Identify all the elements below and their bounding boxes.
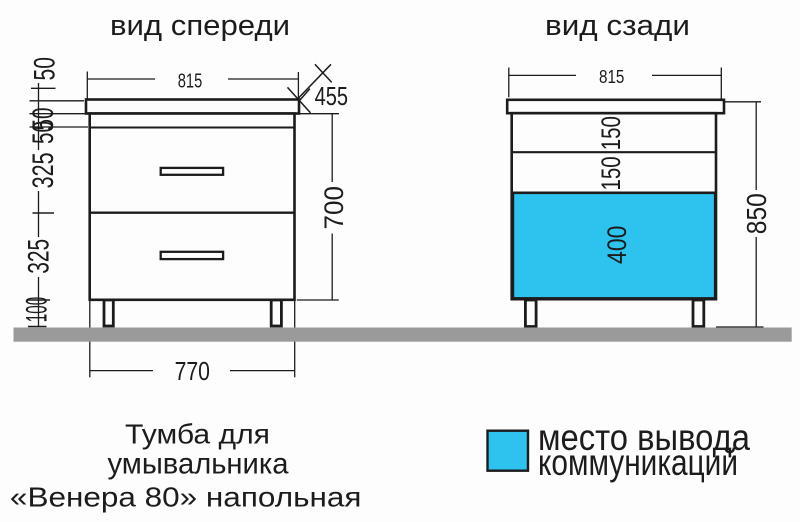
svg-text:700: 700 [319,186,349,230]
svg-text:815: 815 [178,71,203,93]
svg-text:400: 400 [602,226,632,264]
svg-text:Тумба для: Тумба для [125,419,270,450]
svg-text:455: 455 [315,81,348,111]
svg-text:вид спереди: вид спереди [110,10,290,42]
svg-text:770: 770 [175,356,210,386]
svg-text:815: 815 [599,67,624,87]
svg-text:50: 50 [29,57,62,81]
svg-text:150: 150 [596,156,626,190]
svg-text:умывальника: умывальника [108,448,289,481]
svg-text:«Венера 80» напольная: «Венера 80» напольная [10,482,362,513]
svg-text:50: 50 [27,121,60,144]
svg-text:150: 150 [596,116,626,150]
svg-text:850: 850 [741,193,772,234]
svg-text:325: 325 [27,152,60,188]
svg-text:вид сзади: вид сзади [545,10,690,42]
svg-text:коммуникаций: коммуникаций [538,442,738,483]
svg-text:325: 325 [23,239,56,274]
